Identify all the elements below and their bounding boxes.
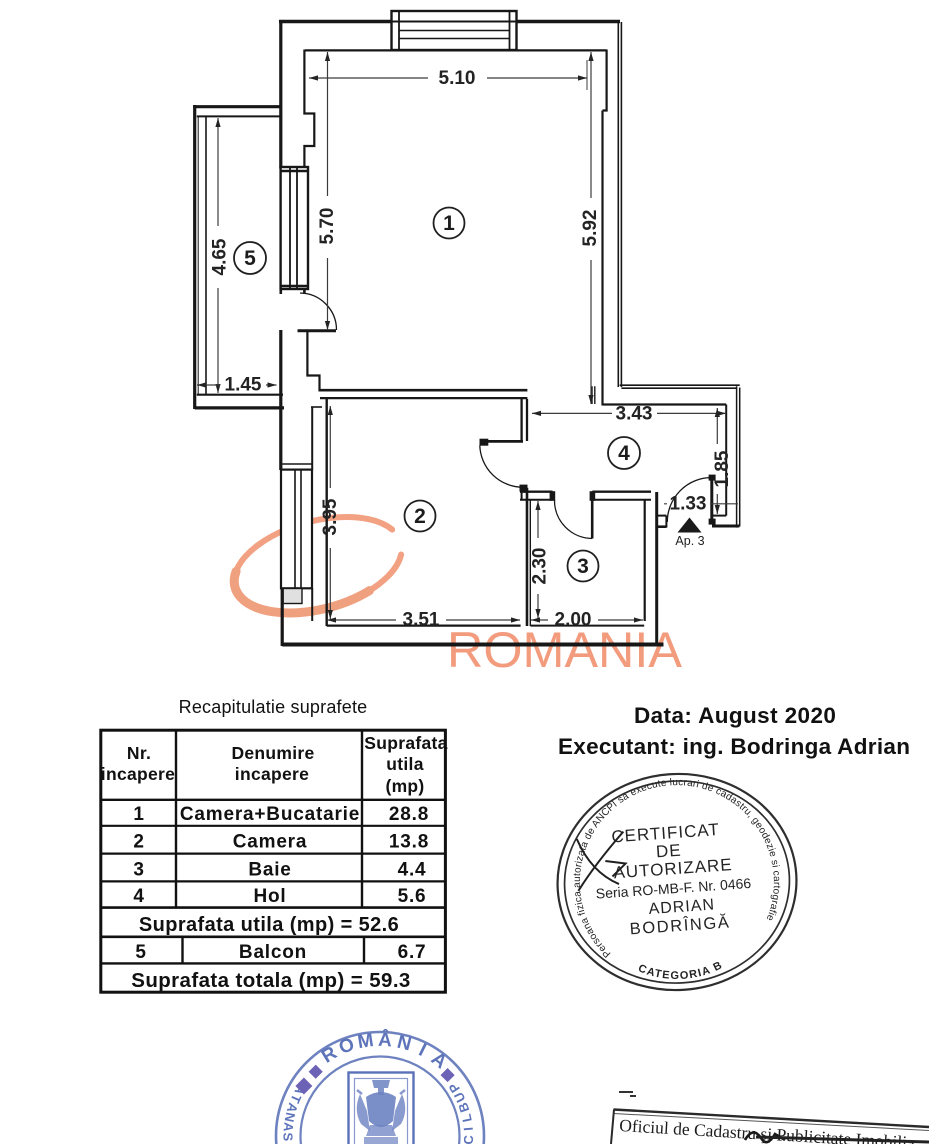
svg-text:4.4: 4.4 <box>398 860 427 881</box>
svg-text:Â: Â <box>378 1029 393 1052</box>
svg-text:incapere: incapere <box>101 764 175 784</box>
svg-text:C: C <box>461 1134 476 1144</box>
svg-text:1: 1 <box>133 804 144 825</box>
svg-text:3: 3 <box>577 555 589 578</box>
svg-text:2.00: 2.00 <box>555 610 592 631</box>
svg-text:N: N <box>395 1032 414 1056</box>
svg-text:Ap. 3: Ap. 3 <box>675 534 704 548</box>
svg-text:3.51: 3.51 <box>403 610 440 631</box>
svg-text:4: 4 <box>133 886 144 907</box>
svg-text:(mp): (mp) <box>385 776 424 796</box>
svg-text:13.8: 13.8 <box>389 832 429 853</box>
svg-text:5: 5 <box>135 942 146 963</box>
svg-text:1.85: 1.85 <box>712 450 733 487</box>
svg-text:1: 1 <box>443 212 455 235</box>
svg-text:BODRÎNGĂ: BODRÎNGĂ <box>629 912 731 938</box>
svg-text:2: 2 <box>414 505 426 528</box>
svg-text:M: M <box>356 1030 375 1053</box>
svg-text:Data: August 2020: Data: August 2020 <box>634 703 836 728</box>
svg-text:5.6: 5.6 <box>398 886 427 907</box>
svg-text:3.43: 3.43 <box>616 404 653 425</box>
svg-text:4.65: 4.65 <box>210 238 231 275</box>
svg-text:5.10: 5.10 <box>439 68 476 89</box>
svg-text:1.45: 1.45 <box>225 375 262 396</box>
svg-text:3: 3 <box>133 860 144 881</box>
svg-text:Camera: Camera <box>233 832 308 853</box>
svg-text:Executant: ing. Bodringa Adri: Executant: ing. Bodringa Adrian <box>558 734 910 759</box>
svg-text:Camera+Bucatarie: Camera+Bucatarie <box>180 804 360 825</box>
svg-text:I: I <box>461 1126 476 1131</box>
svg-text:S: S <box>280 1132 295 1141</box>
svg-text:utila: utila <box>386 754 423 774</box>
svg-text:5: 5 <box>244 247 256 270</box>
svg-text:6.7: 6.7 <box>398 942 427 963</box>
svg-text:R: R <box>318 1042 341 1067</box>
svg-text:A: A <box>280 1122 296 1133</box>
svg-text:Recapitulatie suprafete: Recapitulatie suprafete <box>179 697 368 717</box>
svg-text:Nr.: Nr. <box>127 743 151 763</box>
svg-text:Denumire: Denumire <box>231 743 314 763</box>
svg-text:4: 4 <box>618 442 630 465</box>
svg-text:5.92: 5.92 <box>580 210 601 247</box>
svg-text:Baie: Baie <box>248 860 291 881</box>
svg-text:28.8: 28.8 <box>389 804 429 825</box>
svg-text:O: O <box>336 1034 357 1059</box>
svg-text:incapere: incapere <box>235 764 309 784</box>
svg-text:Suprafata totala (mp) = 59.3: Suprafata totala (mp) = 59.3 <box>131 969 410 992</box>
svg-text:Balcon: Balcon <box>239 942 307 963</box>
svg-text:Suprafata: Suprafata <box>364 733 447 753</box>
svg-text:2: 2 <box>133 832 144 853</box>
svg-text:Suprafata utila (mp) = 52.6: Suprafata utila (mp) = 52.6 <box>139 914 399 936</box>
svg-text:3.95: 3.95 <box>320 498 341 535</box>
svg-text:1.33: 1.33 <box>670 494 707 515</box>
svg-text:Hol: Hol <box>253 886 286 907</box>
svg-text:5.70: 5.70 <box>317 208 338 245</box>
svg-text:I: I <box>415 1040 429 1061</box>
svg-text:2.30: 2.30 <box>530 548 551 585</box>
